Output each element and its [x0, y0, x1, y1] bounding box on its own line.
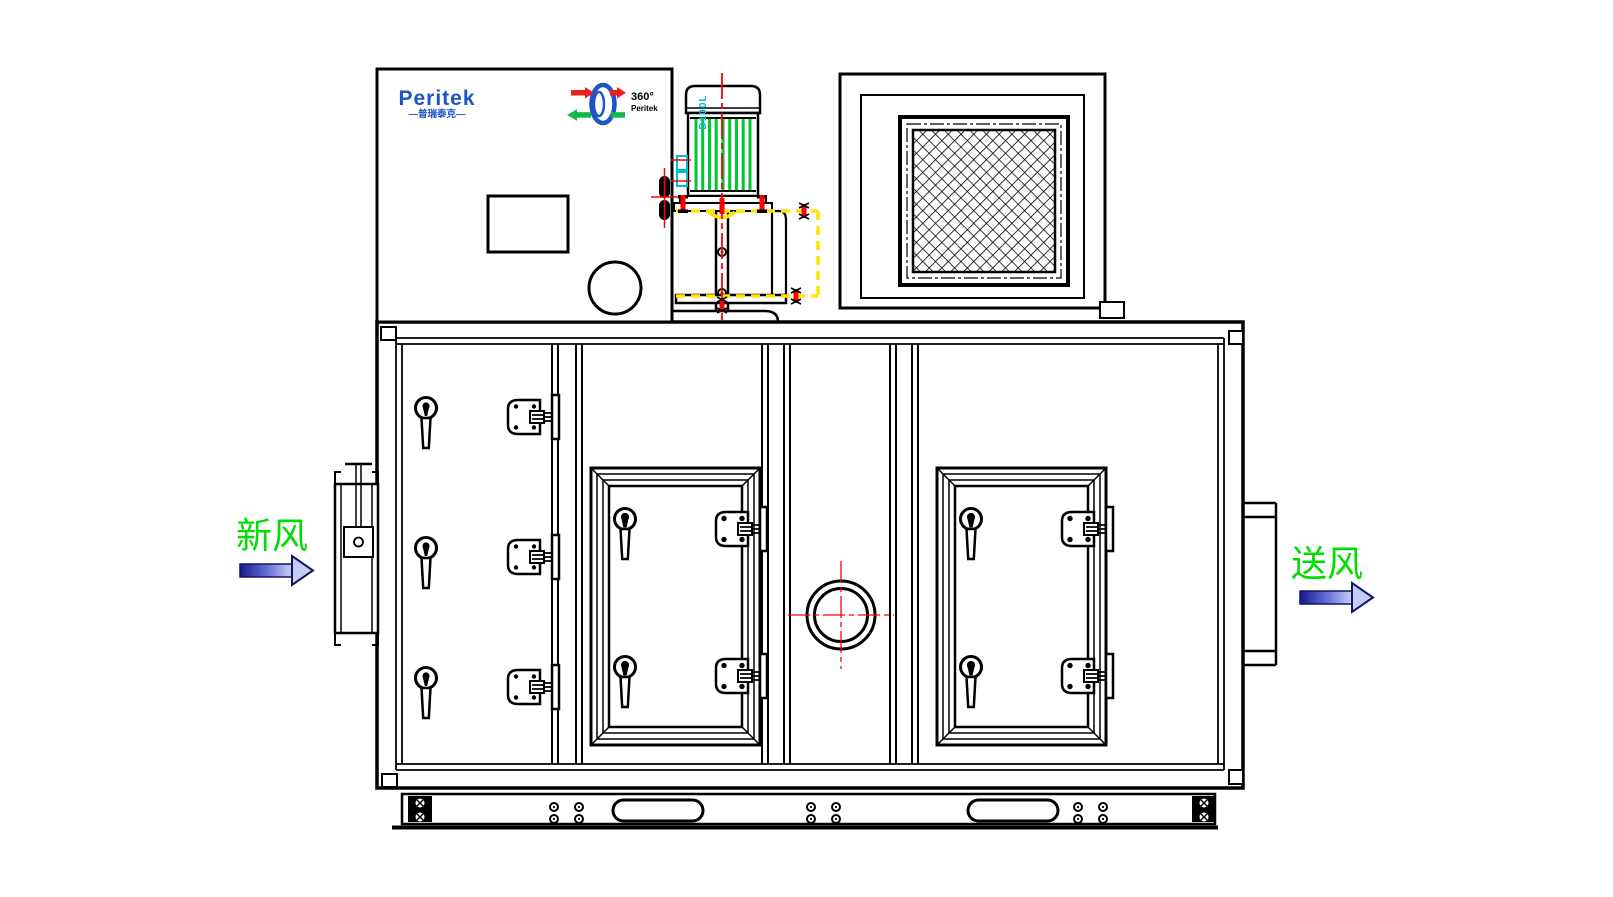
dimension-outline-yellow [676, 211, 818, 296]
nameplate [488, 196, 568, 252]
door-hinge [716, 654, 767, 698]
brand-text: Peritek [398, 87, 475, 110]
door-hinge [1062, 507, 1113, 551]
pedestal-gusset [772, 211, 786, 295]
base-end-bracket [1192, 796, 1216, 822]
motor-holddown-bolt [720, 198, 725, 214]
base-frame [392, 794, 1218, 828]
fresh-air-inlet-damper [335, 464, 378, 645]
forklift-slot [613, 800, 703, 821]
forklift-slot [968, 800, 1058, 821]
drawing-canvas: Peritek —普瑞泰克— 360° Peritek D100L [0, 0, 1613, 897]
supply-air-label: 送风 [1291, 543, 1363, 584]
panel-latch [508, 395, 559, 439]
door-hinge [716, 507, 767, 551]
filter-box [840, 74, 1124, 318]
filter-mesh [913, 130, 1055, 272]
base-end-bracket [408, 796, 432, 822]
filter-box-foot [1100, 302, 1124, 318]
panel-latch [508, 665, 559, 709]
door-hinge [1062, 654, 1113, 698]
damper-actuator [344, 527, 373, 557]
panel-latch [508, 535, 559, 579]
inspection-port [589, 262, 641, 314]
wheel-degree-text: 360° [631, 91, 654, 103]
motor-assembly: D100L [672, 86, 786, 322]
motor-frame-size-label: D100L [698, 94, 709, 129]
fresh-air-label: 新风 [236, 515, 308, 556]
cad-drawing-dehumidifier-front-view: Peritek —普瑞泰克— 360° Peritek D100L [0, 0, 1613, 897]
right-access-door [937, 468, 1113, 745]
motor-pedestal [672, 211, 786, 322]
supply-air-arrow-icon [1300, 583, 1373, 612]
wheel-brand-text: Peritek [631, 104, 658, 113]
brand-subtext: —普瑞泰克— [408, 108, 466, 120]
peritek-logo: Peritek —普瑞泰克— [398, 87, 475, 120]
supply-air-outlet-flange [1243, 503, 1276, 665]
middle-access-door [591, 468, 767, 745]
fresh-air-arrow-icon [240, 556, 313, 585]
